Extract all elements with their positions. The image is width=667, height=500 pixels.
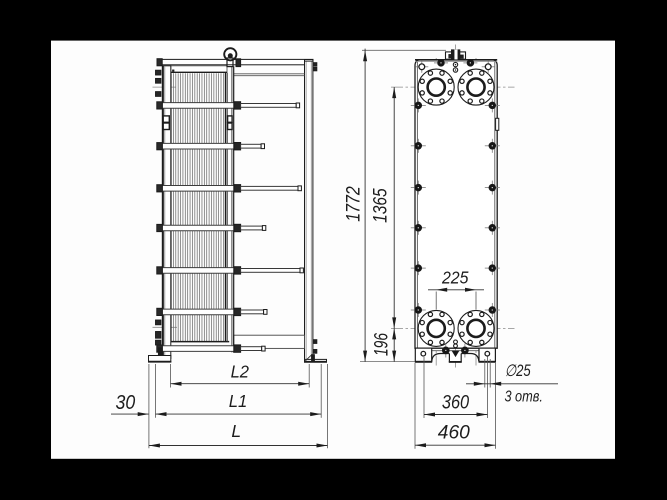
- svg-text:1365: 1365: [370, 188, 392, 223]
- svg-text:1772: 1772: [342, 186, 364, 222]
- svg-text:L: L: [231, 421, 241, 441]
- svg-text:196: 196: [372, 333, 393, 356]
- svg-text:30: 30: [116, 392, 136, 414]
- svg-text:L1: L1: [229, 391, 248, 411]
- svg-text:L2: L2: [231, 362, 250, 382]
- svg-text:460: 460: [438, 421, 470, 443]
- svg-text:225: 225: [441, 268, 469, 288]
- svg-text:3 отв.: 3 отв.: [504, 388, 543, 405]
- svg-text:∅25: ∅25: [505, 362, 532, 380]
- svg-text:360: 360: [442, 392, 470, 413]
